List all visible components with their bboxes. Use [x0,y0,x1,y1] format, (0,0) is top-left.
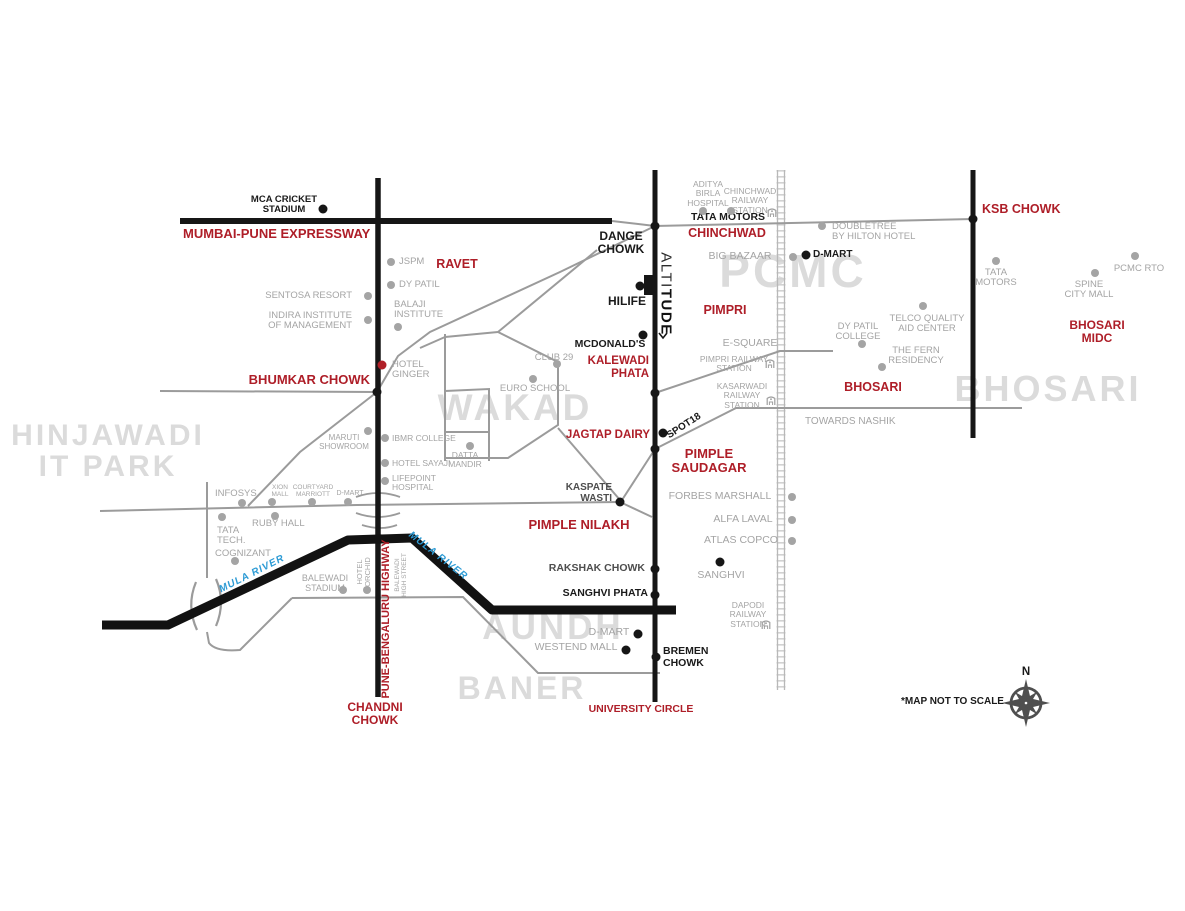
poi-dot-jspm [387,258,395,266]
poi-dot-tata-tech [218,513,226,521]
poi-dot-euro-school [529,375,537,383]
poi-dot-d-mart-aundh [634,630,643,639]
poi-dot-mcdonalds [639,331,648,340]
railway-station-icon [766,393,776,411]
poi-dot-mca-cricket-stadium [319,205,328,214]
railway-station-icon [761,617,771,635]
label-d-mart-pcmc: D-MART [813,249,852,260]
label-doubletree-by-hilton-hotel: DOUBLETREEBY HILTON HOTEL [832,222,915,243]
label-hotel-ginger: HOTELGINGER [392,360,429,381]
label-towards-nashik: TOWARDS NASHIK [805,416,896,427]
poi-dot-d-mart-pcmc [802,251,811,260]
label-pune-bengaluru-highway: PUNE-BENGALURU HIGHWAY [380,539,392,698]
location-map: PCMCBHOSARIWAKADHINJAWADIIT PARKAUNDHBAN… [0,0,1185,911]
poi-dot-kaspate-wasti [616,498,625,507]
label-euro-school: EURO SCHOOL [500,384,570,394]
label-pimple-saudagar: PIMPLESAUDAGAR [671,447,746,476]
poi-dot-cognizant [231,557,239,565]
label-indira-institute-of-management: INDIRA INSTITUTEOF MANAGEMENT [268,311,352,332]
label-jspm: JSPM [399,257,424,267]
altitude-logo-light: ALTI [658,252,675,289]
poi-dot-ruby-hall [271,512,279,520]
label-ksb-chowk: KSB CHOWK [982,203,1060,217]
poi-dot-telco-quality-aid-center [919,302,927,310]
poi-dot-ibmr-college [381,434,389,442]
label-tata-motors-pcmc: TATAMOTORS [975,268,1017,289]
label-dy-patil-college: DY PATILCOLLEGE [836,322,881,343]
poi-dot-hilife [636,282,645,291]
label-hilife: HILIFE [608,295,646,308]
poi-dot-atlas-copco [788,537,796,545]
poi-dot-jagtap-dairy [651,445,660,454]
label-kalewadi-phata: KALEWADIPHATA [588,355,649,380]
poi-dot-ksb-chowk [969,215,978,224]
poi-dot-the-fern-residency [878,363,886,371]
label-balewadi-high-street: BALEWADIHIGH STREET [394,553,408,597]
poi-dot-aditya-birla-hospital [699,207,707,215]
poi-dot-big-bazaar [789,253,797,261]
label-pimpri-railway-station: PIMPRI RAILWAYSTATION [700,355,768,374]
poi-dot-courtyard-marriott [308,498,316,506]
label-atlas-copco: ATLAS COPCO [704,535,778,547]
label-e-square: E-SQUARE [723,338,778,350]
poi-dot-doubletree-by-hilton-hotel [818,222,826,230]
label-kaspate-wasti: KASPATEWASTI [566,482,612,504]
railway-station-icon [767,205,777,223]
label-tata-tech: TATATECH. [217,526,246,547]
label-pcmc-rto: PCMC RTO [1114,264,1164,274]
poi-dot-dange-chowk [651,222,660,231]
poi-dot-rakshak-chowk [651,565,660,574]
label-bhumkar-chowk: BHUMKAR CHOWK [249,373,370,387]
label-ibmr-college: IBMR COLLEGE [392,434,456,443]
poi-dot-hotel-sayaji [381,459,389,467]
poi-dot-alfa-laval [788,516,796,524]
label-telco-quality-aid-center: TELCO QUALITYAID CENTER [890,314,965,335]
label-westend-mall: WESTEND MALL [535,642,618,654]
label-bremen-chowk: BREMENCHOWK [663,646,709,669]
label-jagtap-dairy: JAGTAP DAIRY [566,429,650,442]
label-mumbai-pune-expressway: MUMBAI-PUNE EXPRESSWAY [183,227,370,241]
label-ruby-hall: RUBY HALL [252,519,305,529]
railway-station-icon [765,356,775,374]
label-hotel-orchid: HOTELORCHID [356,557,373,587]
poi-dot-spine-city-mall [1091,269,1099,277]
label-kasarwadi-railway-station: KASARWADIRAILWAYSTATION [717,382,768,410]
poi-dot-spot18 [659,429,668,438]
poi-dot-d-mart-wakad [344,498,352,506]
poi-dot-forbes-marshall [788,493,796,501]
label-hotel-sayaji: HOTEL SAYAJI [392,459,450,468]
label-spine-city-mall: SPINECITY MALL [1065,280,1114,301]
poi-dot-bremen-chowk [652,653,661,662]
poi-dot-westend-mall [622,646,631,655]
label-balaji-institute: BALAJIINSTITUTE [394,300,443,321]
label-spot18: SPOT18 [665,411,703,441]
label-d-mart-wakad: D-MART [336,490,363,498]
label-university-circle: UNIVERSITY CIRCLE [589,704,694,716]
poi-dot-infosys [238,499,246,507]
poi-dot-hotel-orchid [363,586,371,594]
label-chandni-chowk: CHANDNICHOWK [347,701,402,727]
label-courtyard-marriott: COURTYARDMARRIOTT [293,484,334,498]
label-rakshak-chowk: RAKSHAK CHOWK [549,563,645,575]
label-cognizant: COGNIZANT [215,549,271,559]
label-big-bazaar: BIG BAZAAR [708,251,771,263]
altitude-logo-bold: TUDE [658,289,675,336]
label-sanghvi-phata: SANGHVI PHATA [563,588,648,600]
label-d-mart-aundh: D-MART [589,627,630,639]
poi-dot-balewadi-stadium [339,586,347,594]
poi-dot-chinchwad-railway-station [727,207,735,215]
altitude-project-logo: ALTITUDE [658,252,675,335]
label-the-fern-residency: THE FERNRESIDENCY [888,346,943,367]
poi-dot-hotel-ginger [378,361,387,370]
label-lifepoint-hospital: LIFEPOINTHOSPITAL [392,474,436,493]
label-bhosari: BHOSARI [844,381,902,395]
label-compass-n: N [1022,666,1030,679]
poi-dot-sentosa-resort [364,292,372,300]
label-dy-patil: DY PATIL [399,280,440,290]
label-aditya-birla-hospital: ADITYABIRLAHOSPITAL [687,180,728,208]
label-chinchwad: CHINCHWAD [688,227,766,241]
label-dange-chowk: DANGECHOWK [598,230,645,256]
label-pimpri: PIMPRI [703,304,746,318]
label-sentosa-resort: SENTOSA RESORT [265,291,352,301]
poi-dot-sanghvi-phata [651,591,660,600]
label-datta-mandir: DATTAMANDIR [448,451,482,470]
poi-dot-balaji-institute [394,323,402,331]
label-bhosari-midc: BHOSARIMIDC [1069,319,1124,345]
label-infosys: INFOSYS [215,489,257,499]
poi-dot-dy-patil [387,281,395,289]
poi-dot-lifepoint-hospital [381,477,389,485]
poi-labels-layer: ALTITUDE MCA CRICKETSTADIUMMUMBAI-PUNE E… [0,0,1185,911]
label-alfa-laval: ALFA LAVAL [713,514,772,526]
label-pimple-nilakh: PIMPLE NILAKH [528,518,629,532]
label-xion-mall: XIONMALL [272,484,289,498]
poi-dot-xion-mall [268,498,276,506]
label-map-note: *MAP NOT TO SCALE [901,696,1004,707]
poi-dot-club-29 [553,360,561,368]
poi-dot-kalewadi-phata [651,389,660,398]
poi-dot-maruti-showroom [364,427,372,435]
label-maruti-showroom: MARUTISHOWROOM [319,434,369,452]
label-mca-cricket-stadium: MCA CRICKETSTADIUM [251,195,317,216]
poi-dot-indira-institute-of-management [364,316,372,324]
label-forbes-marshall: FORBES MARSHALL [669,491,772,503]
label-sanghvi: SANGHVI [697,570,744,582]
poi-dot-datta-mandir [466,442,474,450]
poi-dot-tata-motors-pcmc [992,257,1000,265]
label-mcdonalds: MCDONALD'S [575,339,646,351]
poi-dot-dy-patil-college [858,340,866,348]
poi-dot-bhumkar-chowk [373,388,382,397]
poi-dot-pcmc-rto [1131,252,1139,260]
label-ravet: RAVET [436,258,477,272]
label-mula-river-east: MULA RIVER [406,530,469,583]
poi-dot-sanghvi [716,558,725,567]
